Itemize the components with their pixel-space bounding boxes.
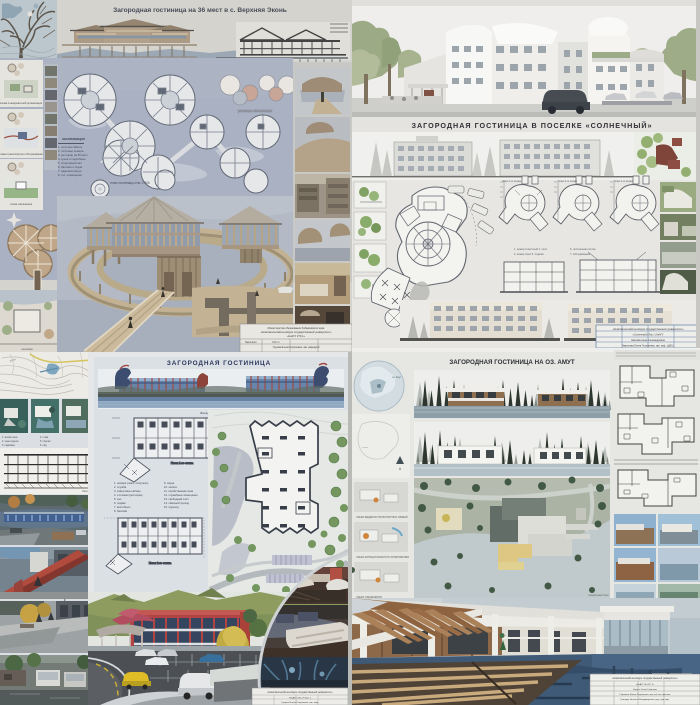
svg-text:8. бассейн: 8. бассейн [114,509,128,513]
svg-text:«Комсомольский-на-Амуре госуда: «Комсомольский-на-Амуре государственный … [260,330,332,334]
svg-text:14. сквозной проезд: 14. сквозной проезд [164,501,189,505]
svg-text:2. номер люкс 5. лоджия: 2. номер люкс 5. лоджия [514,252,544,256]
svg-text:экспликация: экспликация [62,137,85,141]
svg-text:план гостиницы отм. 0.000: план гостиницы отм. 0.000 [110,181,150,185]
svg-text:ЗАГОРОДНАЯ ГОСТИНИЦА НА ОЗ. АМ: ЗАГОРОДНАЯ ГОСТИНИЦА НА ОЗ. АМУТ [449,359,575,366]
svg-text:2. служба: 2. служба [114,485,127,489]
svg-text:«Комсомольский-на-Амуре госуда: «Комсомольский-на-Амуре государственный … [267,691,333,694]
svg-text:«КнАГУ 270.1» Лист 1: «КнАГУ 270.1» Лист 1 [289,697,312,700]
svg-text:12. служебные помещения: 12. служебные помещения [164,493,198,497]
svg-text:«Комсомольский-на-Амуре госуда: «Комсомольский-на-Амуре государственный … [612,677,678,680]
svg-text:10. service: 10. service [164,485,178,489]
svg-text:6. лестничная клетка: 6. лестничная клетка [570,247,596,251]
svg-text:схема транспортного обслуживан: схема транспортного обслуживания [0,152,43,156]
svg-text:5. зал: 5. зал [114,497,122,501]
svg-text:Гущина Елена Георгиевна, зав.: Гущина Елена Георгиевна, зав. кафедрой [273,346,320,349]
svg-text:«Комсомольский-на-Амуре госуда: «Комсомольский-на-Амуре государственный … [612,327,684,331]
svg-text:5. причал: 5. причал [40,440,51,443]
svg-text:«Солнечный» Лист 1 КнАГУ: «Солнечный» Лист 1 КнАГУ [633,334,664,337]
svg-text:Министерство образования Хабар: Министерство образования Хабаровского кр… [268,326,325,330]
svg-text:6. подвал: 6. подвал [114,501,126,505]
svg-text:план 4-го этажа: план 4-го этажа [614,179,633,183]
svg-text:1. номера (люкс, полулюкс): 1. номера (люкс, полулюкс) [114,481,148,485]
svg-text:схема планировочной организаци: схема планировочной организации [0,101,43,105]
svg-text:Гринкруг Наталья Владимировна,: Гринкруг Наталья Владимировна, доц. при … [621,698,670,701]
svg-text:15. переход: 15. переход [164,505,179,509]
svg-text:«КнАГУ 40.417 1»: «КнАГУ 40.417 1» [636,683,655,686]
svg-text:7. обслуживание: 7. обслуживание [570,252,591,256]
svg-text:«КнАГУ 270.1»: «КнАГУ 270.1» [287,334,305,338]
svg-text:13. свободный холл: 13. свободный холл [164,497,189,501]
svg-text:план 2-го этажа: план 2-го этажа [502,179,521,183]
svg-text:Выполнил: Выполнил [245,341,257,344]
svg-text:6. сад: 6. сад [40,444,47,447]
svg-text:3. парковка: 3. парковка [2,444,15,447]
svg-text:условные обозначения: условные обозначения [238,109,272,113]
svg-text:2. зона отдыха: 2. зона отдыха [2,440,19,443]
svg-text:План 1-го этажа: План 1-го этажа [171,461,194,465]
svg-text:Лист 1: Лист 1 [272,341,280,344]
svg-text:схема озеленения: схема озеленения [10,203,33,206]
svg-text:ЗАГОРОДНАЯ ГОСТИНИЦА: ЗАГОРОДНАЯ ГОСТИНИЦА [167,360,271,367]
svg-text:оз. Амут: оз. Амут [392,376,402,379]
svg-text:схема: схема [362,447,369,449]
svg-text:Загородная гостиница на 36 мес: Загородная гостиница на 36 мест в с. Вер… [113,7,287,14]
svg-text:1. номер 2-местный 4. холл: 1. номер 2-местный 4. холл [514,247,548,251]
svg-text:Карась Усова Горбачев: Карась Усова Горбачев [633,689,658,691]
svg-text:8. тех. помещения: 8. тех. помещения [58,173,82,177]
svg-text:генеральный план: генеральный план [588,594,609,597]
svg-text:СХЕМА ВЕДЕНИЯ ТРАНСПОРТНЫХ СВЯ: СХЕМА ВЕДЕНИЯ ТРАНСПОРТНЫХ СВЯЗЕЙ [356,516,408,519]
svg-text:7. вестибюль: 7. вестибюль [114,505,131,509]
svg-text:ЗАГОРОДНАЯ ГОСТИНИЦА В ПОСЕЛКЕ: ЗАГОРОДНАЯ ГОСТИНИЦА В ПОСЕЛКЕ «СОЛНЕЧНЫ… [411,121,652,130]
svg-text:1. жилая зона: 1. жилая зона [2,436,18,439]
svg-text:4. столовая (ресторан): 4. столовая (ресторан) [114,493,143,497]
svg-text:3. zabытовые кабины: 3. zabытовые кабины [114,489,141,493]
svg-text:генплан: генплан [21,347,32,351]
svg-text:9. сауна: 9. сауна [164,481,175,485]
svg-text:11. хозяйственная зона: 11. хозяйственная зона [164,489,194,493]
svg-text:4. пляж: 4. пляж [40,436,49,439]
svg-text:Гущина Елена Георгиевна, зав.: Гущина Елена Георгиевна, зав. каф. [281,701,319,704]
svg-text:план 3-го этажа: план 3-го этажа [558,179,577,183]
svg-text:Шишова Анна Александровна: Шишова Анна Александровна [631,339,665,342]
svg-text:Гаранина Елена Георгиевна, зав: Гаранина Елена Георгиевна, зав. кaf. все… [620,694,671,696]
svg-text:План 2-го этажа: План 2-го этажа [149,561,172,565]
svg-text:СХЕМА ФУНКЦИОНАЛЬНОГО ЗОНИРОВА: СХЕМА ФУНКЦИОНАЛЬНОГО ЗОНИРОВАНИЯ [356,556,409,559]
